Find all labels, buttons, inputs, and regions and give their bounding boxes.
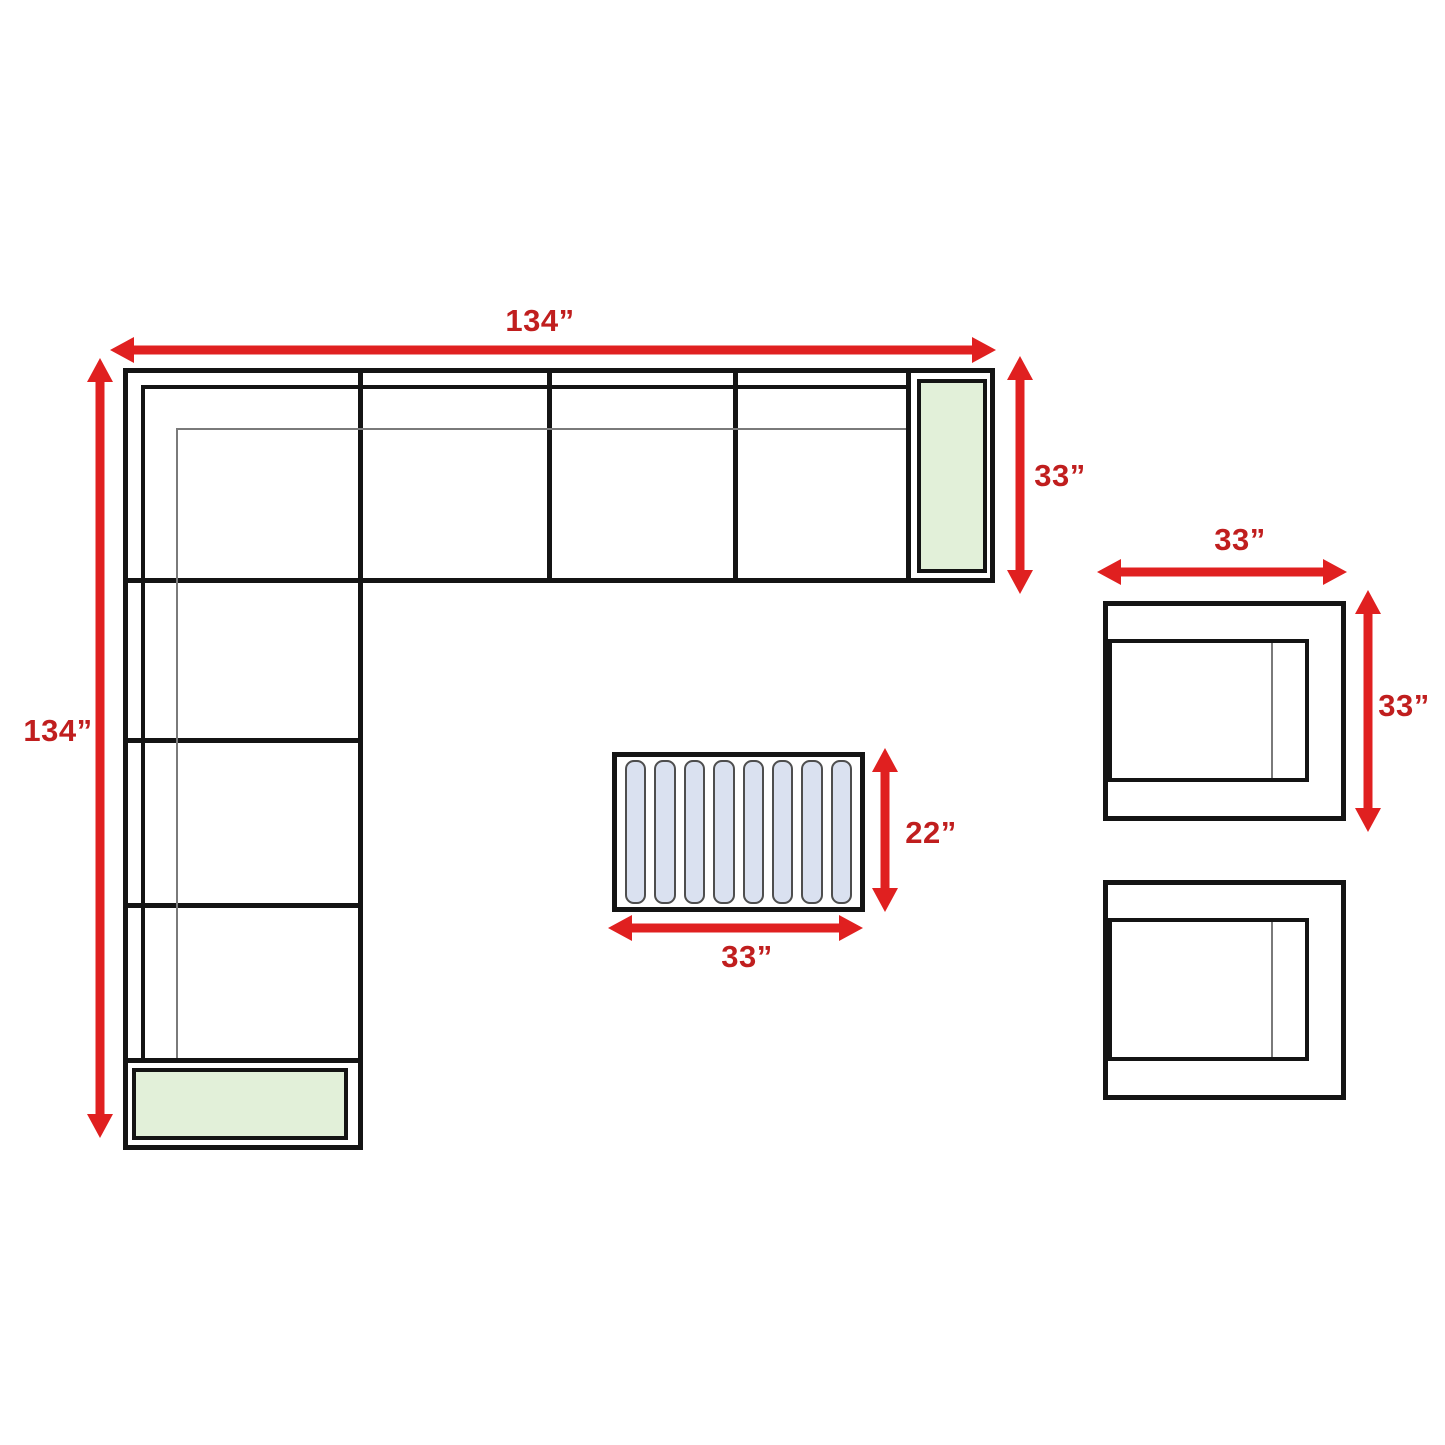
arrow-shaft bbox=[129, 346, 977, 355]
dim-arrow-table-depth bbox=[872, 748, 898, 912]
arrow-head-down-icon bbox=[1355, 808, 1381, 832]
arrow-shaft bbox=[1016, 375, 1025, 575]
arrow-head-down-icon bbox=[87, 1114, 113, 1138]
dim-label-corner-depth: 33” bbox=[1034, 458, 1085, 494]
dim-label-armchair-width: 33” bbox=[1214, 522, 1265, 558]
arrow-head-down-icon bbox=[1007, 570, 1033, 594]
dim-label-table-width: 33” bbox=[721, 939, 772, 975]
armchair-2-outline bbox=[1103, 880, 1346, 1100]
table-slats bbox=[625, 760, 852, 904]
arrow-head-right-icon bbox=[972, 337, 996, 363]
dim-arrow-corner-depth bbox=[1007, 356, 1033, 594]
end-cushion-frame-divider bbox=[123, 1058, 363, 1063]
arrow-head-right-icon bbox=[839, 915, 863, 941]
table-slat bbox=[654, 760, 675, 904]
dim-arrow-table-width bbox=[608, 915, 863, 941]
arrow-shaft bbox=[96, 377, 105, 1119]
seat-divider-vertical-1 bbox=[547, 368, 552, 583]
dim-arrow-sofa-width bbox=[110, 337, 996, 363]
armchair-1-seat bbox=[1108, 639, 1309, 782]
end-cushion-bottom-left bbox=[132, 1068, 348, 1140]
seat-divider-horizontal-2 bbox=[123, 903, 363, 908]
table-slat bbox=[684, 760, 705, 904]
armchair-1-outline bbox=[1103, 601, 1346, 821]
dim-arrow-armchair-width bbox=[1097, 559, 1347, 585]
table-slat bbox=[772, 760, 793, 904]
backrest-edge-line-left bbox=[141, 385, 145, 1058]
arrow-head-right-icon bbox=[1323, 559, 1347, 585]
armchair-2-seat-edge-line bbox=[1271, 922, 1273, 1057]
corner-cushion-frame-divider bbox=[906, 368, 911, 583]
arrow-shaft bbox=[1116, 568, 1328, 577]
armchair-2-seat bbox=[1108, 918, 1309, 1061]
table-slat bbox=[713, 760, 734, 904]
dim-label-table-depth: 22” bbox=[905, 815, 956, 851]
armchair-1-seat-edge-line bbox=[1271, 643, 1273, 778]
cushion-edge-line-left bbox=[176, 428, 178, 1058]
end-cushion-top-right bbox=[917, 379, 987, 573]
arrow-head-down-icon bbox=[872, 888, 898, 912]
diagram-canvas: 134” 134” 33” 33” 33” 22” 33” bbox=[0, 0, 1445, 1445]
sectional-left-arm-outline bbox=[123, 368, 363, 1150]
arrow-shaft bbox=[881, 767, 890, 893]
coffee-table-outline bbox=[612, 752, 865, 912]
dim-arrow-armchair-depth bbox=[1355, 590, 1381, 832]
dim-label-sofa-depth: 134” bbox=[23, 713, 92, 749]
seat-divider-vertical-2 bbox=[733, 368, 738, 583]
dim-label-armchair-depth: 33” bbox=[1378, 688, 1429, 724]
table-slat bbox=[625, 760, 646, 904]
arrow-shaft bbox=[1364, 609, 1373, 813]
dim-label-sofa-width: 134” bbox=[505, 303, 574, 339]
table-slat bbox=[743, 760, 764, 904]
table-slat bbox=[801, 760, 822, 904]
seat-divider-horizontal-1 bbox=[123, 738, 363, 743]
arrow-shaft bbox=[627, 924, 844, 933]
backrest-edge-line-top bbox=[141, 385, 906, 389]
cushion-edge-line-top bbox=[176, 428, 906, 430]
table-slat bbox=[831, 760, 852, 904]
